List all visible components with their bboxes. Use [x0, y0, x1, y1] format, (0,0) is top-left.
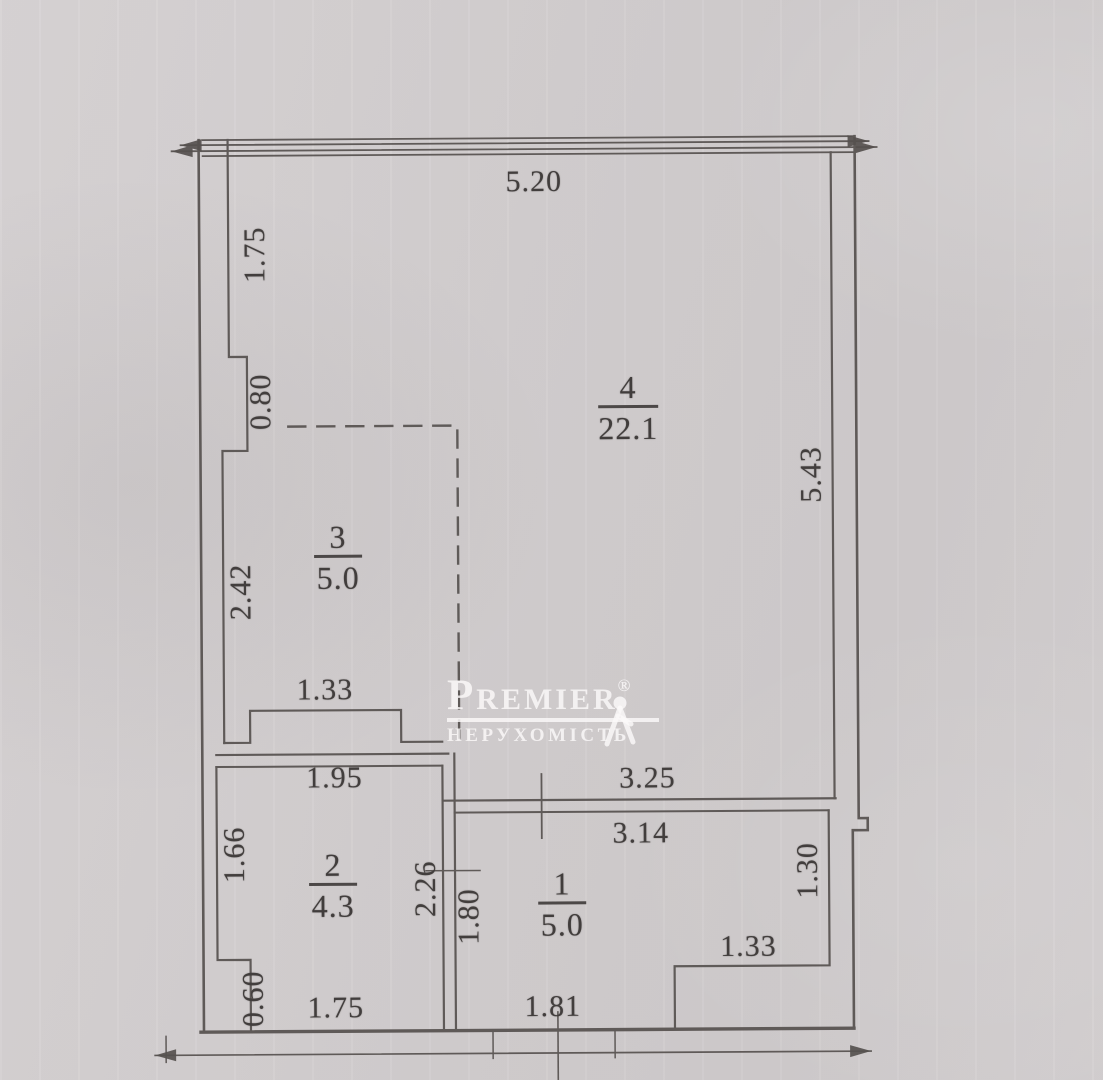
arrowhead-right	[850, 1045, 871, 1057]
dimension-label: 1.75	[238, 226, 272, 283]
room-number: 3	[329, 519, 346, 556]
dimension-label: 3.25	[619, 761, 676, 795]
right-outer-wall	[849, 136, 869, 1028]
scanned-floor-plan-page: 5.201.750.802.421.331.951.662.261.800.60…	[0, 0, 1103, 1080]
arrowhead-left	[172, 145, 193, 157]
balcony-rail-inner-line	[203, 152, 855, 156]
arrowhead-right	[856, 141, 877, 153]
dimension-label: 2.26	[409, 860, 443, 917]
bottom-dimension-line	[155, 1051, 871, 1055]
room-area: 22.1	[598, 410, 658, 447]
top-dimension-line	[181, 141, 869, 145]
balcony-rail-line	[203, 136, 855, 140]
room-number: 4	[619, 369, 636, 406]
room-label-rule	[314, 555, 362, 558]
left-outer-wall	[199, 140, 204, 1032]
bottom-outer-wall	[201, 1028, 854, 1032]
dimension-label: 2.42	[224, 564, 258, 621]
room4-right-inner-wall	[831, 152, 835, 798]
dimension-label: 1.95	[306, 761, 363, 795]
dimension-label: 1.30	[791, 842, 825, 899]
dimension-label: 0.60	[237, 970, 271, 1027]
dimension-label: 1.80	[452, 888, 486, 945]
room-label-rule	[598, 405, 658, 408]
dimension-label: 1.75	[308, 991, 365, 1025]
room1-top-wall	[443, 798, 836, 800]
dimension-label: 5.43	[794, 446, 828, 503]
dimension-label: 5.20	[505, 165, 562, 199]
room-label-rule	[309, 883, 357, 886]
top-dimension-line	[172, 147, 877, 151]
room-number: 2	[324, 847, 341, 884]
room2-top-wall	[216, 754, 448, 755]
dimension-label: 0.80	[244, 373, 278, 430]
dimension-label: 1.33	[720, 930, 777, 964]
room-area: 5.0	[317, 560, 360, 597]
room-number: 1	[553, 865, 570, 902]
room-label-rule	[538, 901, 586, 904]
room3-niche-wall	[224, 710, 442, 743]
dimension-label: 1.66	[218, 827, 252, 884]
dimension-label: 3.14	[612, 816, 669, 850]
dimension-label: 1.33	[297, 673, 354, 707]
dimension-label: 1.81	[524, 990, 581, 1024]
room-area: 5.0	[541, 906, 584, 943]
room-area: 4.3	[312, 888, 355, 925]
room1-top-wall-inner	[455, 810, 829, 812]
floor-plan: 5.201.750.802.421.331.951.662.261.800.60…	[0, 0, 1103, 1080]
